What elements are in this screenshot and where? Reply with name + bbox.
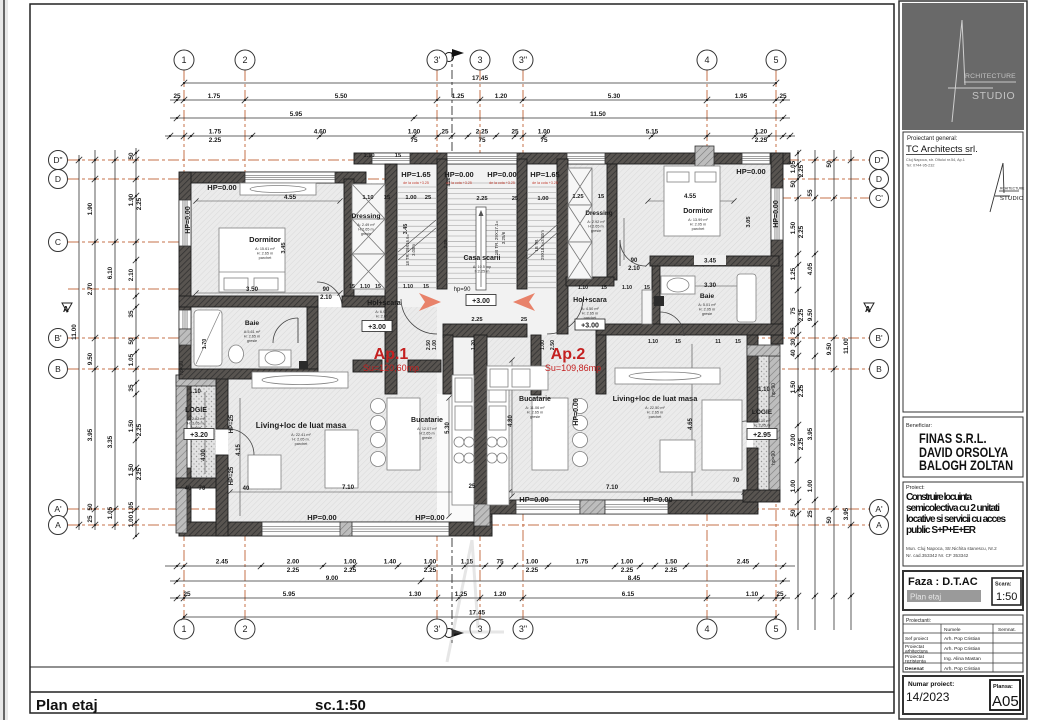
svg-text:Hol+scara: Hol+scara [367,300,401,307]
svg-text:25: 25 [807,510,814,518]
svg-text:50: 50 [790,180,797,188]
svg-text:70: 70 [733,478,740,484]
svg-text:H: 2.05 m: H: 2.05 m [690,223,706,227]
svg-text:Su=120,60mp: Su=120,60mp [363,363,419,373]
svg-text:parchet: parchet [692,227,706,231]
svg-text:2.25: 2.25 [798,308,805,321]
svg-text:STUDIO: STUDIO [972,90,1015,102]
svg-text:3.95: 3.95 [843,507,850,520]
svg-text:B: B [876,364,882,374]
svg-text:H: 2.65 m: H: 2.65 m [376,315,392,319]
svg-text:de la cota +3.25: de la cota +3.25 [403,181,429,185]
svg-text:3.45: 3.45 [704,258,717,265]
svg-text:A: A [63,305,69,314]
svg-text:H: 2.05 m.: H: 2.05 m. [187,422,205,426]
svg-text:2.25: 2.25 [798,164,805,177]
svg-text:D: D [876,174,882,184]
svg-text:B': B' [875,333,883,343]
svg-text:2.10: 2.10 [628,266,640,272]
svg-text:25: 25 [441,129,449,136]
svg-text:1.00: 1.00 [621,559,634,566]
svg-text:A: 2.92 m²: A: 2.92 m² [587,220,605,224]
svg-text:Nr. cad.353342 Nr. CF 353342: Nr. cad.353342 Nr. CF 353342 [906,553,969,558]
svg-text:15: 15 [735,339,741,345]
svg-text:2.25: 2.25 [287,567,300,574]
svg-text:1.20: 1.20 [494,591,507,598]
svg-text:14/2023: 14/2023 [906,690,950,704]
svg-text:1.95: 1.95 [735,93,748,100]
svg-text:gresie: gresie [361,232,371,236]
svg-text:5.95: 5.95 [290,111,303,118]
svg-text:1.10: 1.10 [578,285,588,291]
svg-text:3: 3 [477,55,482,65]
svg-text:Living+loc de luat masa: Living+loc de luat masa [613,394,699,403]
svg-text:HP=1.65: HP=1.65 [530,170,559,179]
svg-text:75: 75 [496,559,504,566]
svg-text:11.00: 11.00 [843,338,850,354]
svg-text:1.10: 1.10 [363,153,374,159]
svg-text:Hol+scara: Hol+scara [573,297,607,304]
svg-text:4.65: 4.65 [688,418,694,430]
svg-text:2.25: 2.25 [209,137,222,144]
svg-text:2.25: 2.25 [476,196,488,202]
svg-text:1.50: 1.50 [790,380,797,393]
svg-text:1.10: 1.10 [189,389,201,395]
svg-text:Ing. Alina Mastan: Ing. Alina Mastan [944,656,981,662]
svg-text:1.10: 1.10 [362,195,373,201]
svg-text:15: 15 [598,194,605,200]
svg-text:Baie: Baie [700,293,715,300]
svg-text:1.00: 1.00 [432,340,438,350]
svg-text:5: 5 [773,55,778,65]
svg-text:H:2.65 m: H:2.65 m [588,225,603,229]
svg-text:50: 50 [826,516,833,524]
svg-text:A: 22.41 m²: A: 22.41 m² [291,433,311,437]
svg-text:A: 4.50 m²: A: 4.50 m² [581,307,599,311]
svg-text:+3.20: +3.20 [190,432,208,439]
svg-text:H: 2.05 m.: H: 2.05 m. [292,438,310,442]
svg-text:1.10: 1.10 [758,387,770,393]
svg-text:HP=0.00: HP=0.00 [519,495,548,504]
svg-text:2: 2 [242,624,247,634]
svg-text:de la cota +3.25: de la cota +3.25 [489,181,515,185]
svg-text:Semnat.: Semnat. [998,627,1016,633]
svg-text:1.10: 1.10 [622,285,632,291]
svg-text:RCHITECTURE: RCHITECTURE [965,73,1016,80]
svg-text:Living+loc de luat masa: Living+loc de luat masa [256,421,347,430]
svg-text:1: 1 [181,624,186,634]
svg-text:LOGIE: LOGIE [185,407,207,414]
svg-text:HP=25: HP=25 [229,466,235,485]
svg-text:3.05: 3.05 [746,216,752,228]
svg-text:75: 75 [410,137,418,144]
svg-text:15: 15 [375,284,381,290]
svg-text:1.25: 1.25 [572,194,584,200]
svg-text:gresie: gresie [702,312,712,316]
svg-text:2.10: 2.10 [320,295,332,301]
svg-text:2.25: 2.25 [621,567,634,574]
svg-text:8.45: 8.45 [628,575,641,582]
svg-text:H: 2.65 m: H: 2.65 m [257,252,273,256]
svg-text:3': 3' [434,624,441,634]
svg-text:5: 5 [773,624,778,634]
svg-text:25: 25 [183,591,191,598]
svg-text:H: 2.65 m: H: 2.65 m [582,312,598,316]
svg-text:Arh. Pop Cristian: Arh. Pop Cristian [944,666,981,672]
svg-text:D: D [55,174,61,184]
svg-text:1:50: 1:50 [996,591,1017,603]
svg-text:25: 25 [790,327,797,335]
svg-text:2: 2 [242,55,247,65]
svg-text:35: 35 [128,384,135,392]
svg-text:de la cota +3.25: de la cota +3.25 [532,181,558,185]
svg-text:50: 50 [128,337,135,345]
svg-text:parchet: parchet [295,442,309,446]
svg-text:3.30: 3.30 [704,282,717,289]
svg-text:parchet: parchet [649,415,663,419]
svg-text:HP=0.00: HP=0.00 [736,167,765,176]
svg-text:25: 25 [779,93,787,100]
svg-text:HP=0.00: HP=0.00 [307,513,336,522]
svg-text:3.95: 3.95 [87,428,94,441]
svg-text:90: 90 [631,258,638,264]
svg-text:1.10: 1.10 [746,591,759,598]
svg-text:4.00: 4.00 [201,449,207,461]
svg-text:1.50: 1.50 [790,221,797,234]
svg-text:15: 15 [601,285,607,291]
svg-text:50: 50 [790,509,797,517]
svg-text:15: 15 [349,284,355,290]
svg-text:1.10: 1.10 [648,339,658,345]
svg-text:A: A [55,520,61,530]
svg-text:5.30: 5.30 [608,93,621,100]
svg-text:A: 2.49 m²: A: 2.49 m² [357,223,375,227]
svg-text:A: A [865,305,871,314]
svg-text:1.05: 1.05 [128,501,135,514]
svg-text:arhitectura: arhitectura [905,649,928,655]
svg-text:4.05: 4.05 [807,262,814,275]
svg-text:H: 2.05 m: H: 2.05 m [699,308,715,312]
svg-text:25: 25 [469,484,476,490]
svg-text:30: 30 [790,338,797,346]
svg-text:B: B [55,364,61,374]
svg-text:Bucatarie: Bucatarie [519,396,551,403]
svg-text:1.00: 1.00 [807,479,814,492]
svg-text:2.70: 2.70 [87,282,94,295]
svg-text:+3.00: +3.00 [472,298,490,305]
svg-text:9.50: 9.50 [807,308,814,321]
svg-text:Plan etaj: Plan etaj [36,697,98,714]
svg-text:1.00: 1.00 [405,195,416,201]
svg-text:7.10: 7.10 [342,484,355,491]
svg-text:50: 50 [128,152,135,160]
svg-text:Dressing: Dressing [585,210,612,217]
svg-text:1.10: 1.10 [403,284,413,290]
svg-text:Bucatarie: Bucatarie [411,417,443,424]
svg-text:4: 4 [704,624,709,634]
svg-text:90: 90 [323,287,330,293]
svg-text:50: 50 [826,160,833,168]
svg-text:1.70: 1.70 [202,339,208,350]
svg-text:A: 13.99 m²: A: 13.99 m² [688,218,708,222]
svg-text:gresie: gresie [591,229,601,233]
svg-text:gresie: gresie [530,415,540,419]
svg-text:HP=1.65: HP=1.65 [401,170,430,179]
svg-text:40: 40 [243,486,250,492]
svg-text:2.25: 2.25 [344,567,357,574]
svg-text:2.45: 2.45 [737,559,750,566]
svg-text:15: 15 [384,195,391,201]
svg-text:public S+P+E+ER: public S+P+E+ER [906,525,977,536]
svg-text:3": 3" [519,55,527,65]
svg-text:1.50: 1.50 [128,463,135,476]
svg-text:+2.95: +2.95 [753,432,771,439]
svg-text:3.95: 3.95 [807,427,814,440]
svg-text:4.20: 4.20 [446,177,451,186]
svg-text:15: 15 [644,285,650,291]
svg-text:15: 15 [423,284,429,290]
svg-text:+3.00: +3.00 [368,324,386,331]
svg-text:3.25/6: 3.25/6 [501,231,506,244]
svg-text:Sef proiect: Sef proiect [905,636,929,642]
svg-text:3.00m: 3.00m [411,244,416,256]
svg-text:2.25: 2.25 [424,567,437,574]
svg-text:Plan etaj: Plan etaj [910,593,941,602]
svg-text:A: A [876,520,882,530]
svg-text:2.25: 2.25 [798,225,805,238]
svg-text:locative si servicii cu acces: locative si servicii cu acces [906,514,1006,525]
svg-text:2.25: 2.25 [471,317,483,323]
svg-text:Numele: Numele [944,627,961,633]
svg-text:A: 12.07 m²: A: 12.07 m² [417,427,437,431]
svg-text:3': 3' [434,55,441,65]
svg-text:+3.00: +3.00 [581,323,599,330]
svg-text:55: 55 [807,189,814,197]
svg-text:75: 75 [540,137,548,144]
svg-text:1.05: 1.05 [128,353,135,366]
svg-text:1.25: 1.25 [790,267,797,280]
svg-text:Dressing: Dressing [351,213,380,220]
svg-text:6.15: 6.15 [622,591,635,598]
svg-text:D": D" [53,155,62,165]
svg-text:4.55: 4.55 [284,194,297,201]
svg-text:gresie: gresie [422,436,432,440]
svg-text:3": 3" [519,624,527,634]
svg-text:2.25: 2.25 [136,423,143,436]
svg-text:70: 70 [199,486,206,492]
svg-text:Proiectant general:: Proiectant general: [907,136,958,142]
svg-text:H: 2.05 m: H: 2.05 m [754,424,770,428]
svg-text:HP=0.00: HP=0.00 [487,170,516,179]
svg-text:BALOGH ZOLTAN: BALOGH ZOLTAN [919,458,1013,473]
svg-text:A: 15.61 m²: A: 15.61 m² [255,247,275,251]
svg-text:75: 75 [790,307,797,315]
svg-text:HP=0.00: HP=0.00 [643,495,672,504]
svg-text:5.30: 5.30 [445,422,451,434]
svg-text:25: 25 [521,317,528,323]
svg-text:1: 1 [181,55,186,65]
svg-text:3.45: 3.45 [281,242,287,254]
svg-text:15: 15 [395,153,402,159]
svg-text:A': A' [54,504,62,514]
svg-text:RCHITECTURE: RCHITECTURE [1000,187,1025,191]
svg-text:1.00: 1.00 [538,129,551,136]
svg-text:H: 2.65 m: H: 2.65 m [647,411,663,415]
svg-text:2.25: 2.25 [136,197,143,210]
svg-text:50: 50 [87,503,94,511]
svg-text:2.25: 2.25 [136,467,143,480]
svg-text:17.45: 17.45 [472,75,488,82]
svg-text:1.75: 1.75 [576,559,589,566]
svg-text:11: 11 [715,339,721,345]
svg-text:1.50: 1.50 [128,419,135,432]
svg-text:11.00: 11.00 [71,324,78,340]
svg-text:A: 2.82 m²: A: 2.82 m² [187,417,205,421]
svg-text:4: 4 [704,55,709,65]
svg-text:hp=90: hp=90 [771,383,777,397]
svg-text:H:2.65 m: H:2.65 m [419,432,434,436]
svg-text:A:5.61 m²: A:5.61 m² [244,330,261,334]
svg-text:C': C' [875,193,883,203]
svg-text:2.00: 2.00 [287,559,300,566]
svg-text:H: 2.65 m: H: 2.65 m [527,411,543,415]
svg-text:A: 6.92 m²: A: 6.92 m² [375,310,393,314]
svg-text:D": D" [874,155,883,165]
svg-text:2.10: 2.10 [128,268,135,281]
svg-text:4.60: 4.60 [314,129,327,136]
svg-text:2.50: 2.50 [550,340,556,350]
svg-text:Arh. Pop Cristian: Arh. Pop Cristian [944,646,981,652]
svg-text:C: C [55,237,61,247]
svg-text:Numar proiect:: Numar proiect: [908,681,954,688]
svg-text:Dormitor: Dormitor [249,235,281,244]
svg-text:hp=90: hp=90 [771,451,777,465]
svg-text:2.25: 2.25 [798,384,805,397]
svg-text:9.50: 9.50 [87,352,94,365]
svg-text:hp=90: hp=90 [179,361,185,375]
svg-text:1.00: 1.00 [526,559,539,566]
svg-text:25: 25 [87,515,94,523]
svg-text:Cluj Napoca, str. Oltului nr.5: Cluj Napoca, str. Oltului nr.54, Ap.1 [906,158,965,162]
svg-text:Arh. Pop Cristian: Arh. Pop Cristian [944,636,981,642]
svg-text:1.00: 1.00 [128,514,135,527]
svg-text:semicolectiva cu 2 unitati: semicolectiva cu 2 unitati [906,503,1000,514]
svg-text:H:2.65 m: H:2.65 m [358,228,373,232]
svg-text:HP=0.00: HP=0.00 [573,398,580,426]
svg-text:9.50: 9.50 [826,342,833,355]
svg-text:HP=0.00: HP=0.00 [207,183,236,192]
svg-text:3.35: 3.35 [107,435,114,448]
svg-text:Faza : D.T.AC: Faza : D.T.AC [908,576,978,588]
svg-text:5.50: 5.50 [335,93,348,100]
svg-text:1.90: 1.90 [128,193,135,206]
svg-text:Tel: 0744-95-232: Tel: 0744-95-232 [906,164,935,168]
svg-text:Baie: Baie [245,320,260,327]
svg-text:1.20: 1.20 [755,129,768,136]
svg-text:h:2.25 m: h:2.25 m [475,270,490,274]
svg-text:1B TR.: 1B TR. [534,239,539,252]
svg-text:LOGIE: LOGIE [752,409,773,416]
svg-text:1.00: 1.00 [344,559,357,566]
svg-text:1.10: 1.10 [360,284,370,290]
svg-text:25: 25 [173,93,181,100]
svg-text:hp=90: hp=90 [454,287,472,293]
svg-text:15: 15 [675,339,681,345]
svg-text:1.00: 1.00 [424,559,437,566]
svg-text:Proiectanti:: Proiectanti: [906,618,931,624]
svg-text:STUDIO: STUDIO [1000,196,1024,202]
svg-text:2.25: 2.25 [476,129,489,136]
svg-text:7.10: 7.10 [606,484,619,491]
svg-text:1.50: 1.50 [665,559,678,566]
svg-text:35: 35 [128,310,135,318]
svg-text:3.45: 3.45 [403,224,409,235]
svg-text:25: 25 [512,196,519,202]
svg-text:25: 25 [776,591,784,598]
svg-text:HP=0.00: HP=0.00 [185,206,192,234]
svg-text:2.50: 2.50 [426,340,432,350]
svg-text:Desenat: Desenat [905,666,924,672]
svg-text:5.95: 5.95 [283,591,296,598]
svg-text:1.75: 1.75 [209,129,222,136]
svg-text:Plansa:: Plansa: [993,684,1013,690]
svg-text:1.05: 1.05 [790,160,797,173]
svg-text:1.05: 1.05 [107,506,114,519]
svg-text:6.10: 6.10 [107,266,114,279]
svg-text:A: 11.06 m²: A: 11.06 m² [525,406,545,410]
svg-text:3.50: 3.50 [246,286,259,293]
svg-text:1.90: 1.90 [87,202,94,215]
svg-text:gresie: gresie [247,339,257,343]
svg-text:5.15: 5.15 [646,129,659,136]
svg-text:Construire locuinta: Construire locuinta [906,492,972,503]
svg-text:29X18.5=3.00m: 29X18.5=3.00m [540,230,545,260]
svg-text:75: 75 [478,137,486,144]
svg-text:1.00: 1.00 [790,479,797,492]
svg-text:1.25: 1.25 [452,93,465,100]
svg-text:rezistenta: rezistenta [905,659,926,665]
svg-text:4.80: 4.80 [508,415,514,427]
svg-text:Mun. Cluj Napoca, Str.Nichita: Mun. Cluj Napoca, Str.Nichita stanescu, … [906,546,997,551]
svg-text:sc.1:50: sc.1:50 [315,697,366,714]
svg-text:25: 25 [425,195,432,201]
svg-text:Su=109,86mp: Su=109,86mp [545,363,601,373]
svg-text:18 TR. 29X16.6=: 18 TR. 29X16.6= [405,234,410,266]
svg-text:1.00: 1.00 [408,129,421,136]
svg-text:Ap.1: Ap.1 [374,346,409,363]
svg-text:A05: A05 [992,693,1019,710]
svg-text:1.75: 1.75 [208,93,221,100]
svg-text:A: 10.5 mp: A: 10.5 mp [473,265,491,269]
svg-text:A: 4.10 m²: A: 4.10 m² [753,419,771,423]
svg-text:HP=0.00: HP=0.00 [415,513,444,522]
svg-text:40: 40 [185,486,192,492]
svg-text:A: 22.50 m²: A: 22.50 m² [645,406,665,410]
svg-text:FINAS S.R.L.: FINAS S.R.L. [919,431,987,446]
svg-text:HP=25: HP=25 [229,414,235,433]
svg-text:Dormitor: Dormitor [683,208,713,215]
svg-text:H: 2.65 m: H: 2.65 m [244,335,260,339]
svg-text:4.55: 4.55 [684,193,697,200]
svg-text:40: 40 [790,349,797,357]
svg-text:HP=0.00: HP=0.00 [773,200,780,228]
svg-text:Proiect:: Proiect: [906,485,925,491]
svg-text:2.00: 2.00 [790,433,797,446]
svg-text:11.50: 11.50 [590,111,606,118]
svg-text:9.00: 9.00 [326,575,339,582]
svg-text:1.20: 1.20 [495,93,508,100]
svg-text:TC Architects srl.: TC Architects srl. [906,144,978,155]
